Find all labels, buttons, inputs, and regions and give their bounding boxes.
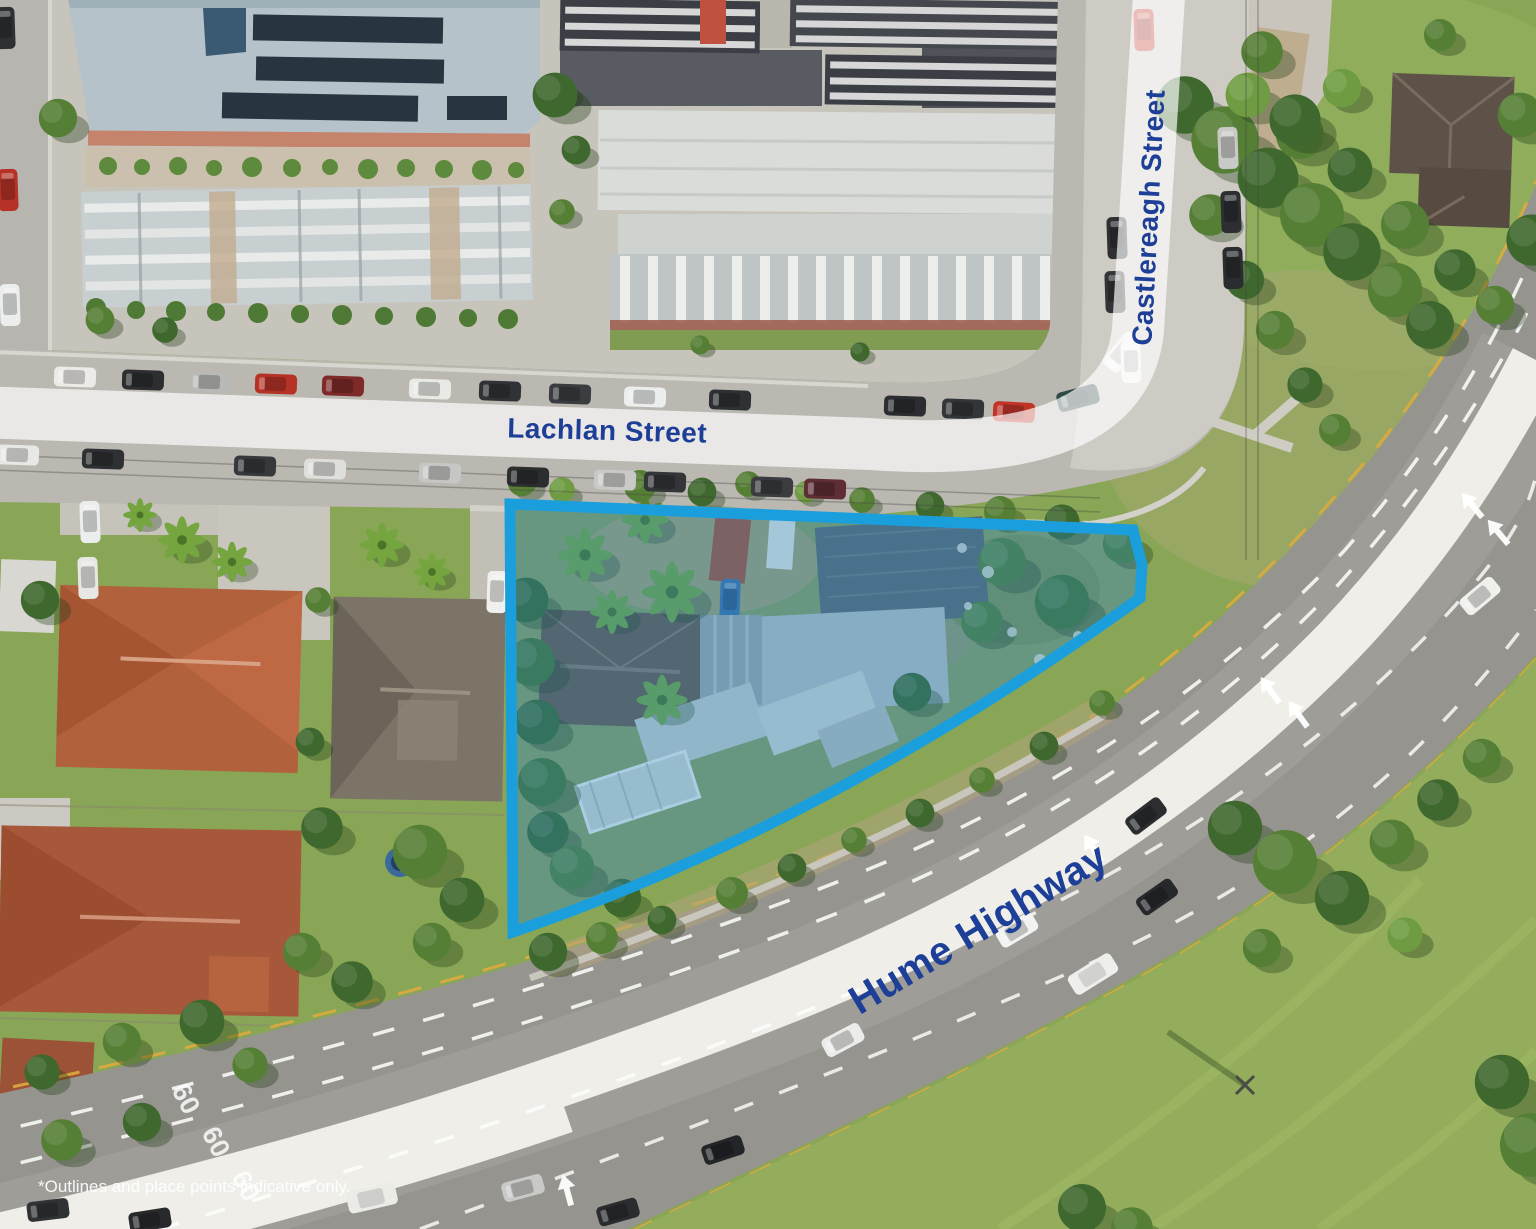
apartment-complex-left	[68, 0, 540, 329]
house-terracotta-a	[56, 585, 303, 773]
red-accent-wall	[700, 0, 726, 44]
lachlan-street-label: Lachlan Street	[507, 412, 708, 448]
aerial-photo-canvas: 60 60 60	[0, 0, 1536, 1229]
house-terracotta-c	[0, 825, 302, 1016]
disclaimer-text: *Outlines and place points indicative on…	[38, 1177, 350, 1196]
office-building-center	[598, 110, 1064, 350]
house-gray-b	[330, 597, 505, 802]
balcony-facade	[81, 184, 533, 308]
dark-apartment-blocks-top	[560, 0, 1066, 108]
aerial-screenshot: 60 60 60	[0, 0, 1536, 1229]
